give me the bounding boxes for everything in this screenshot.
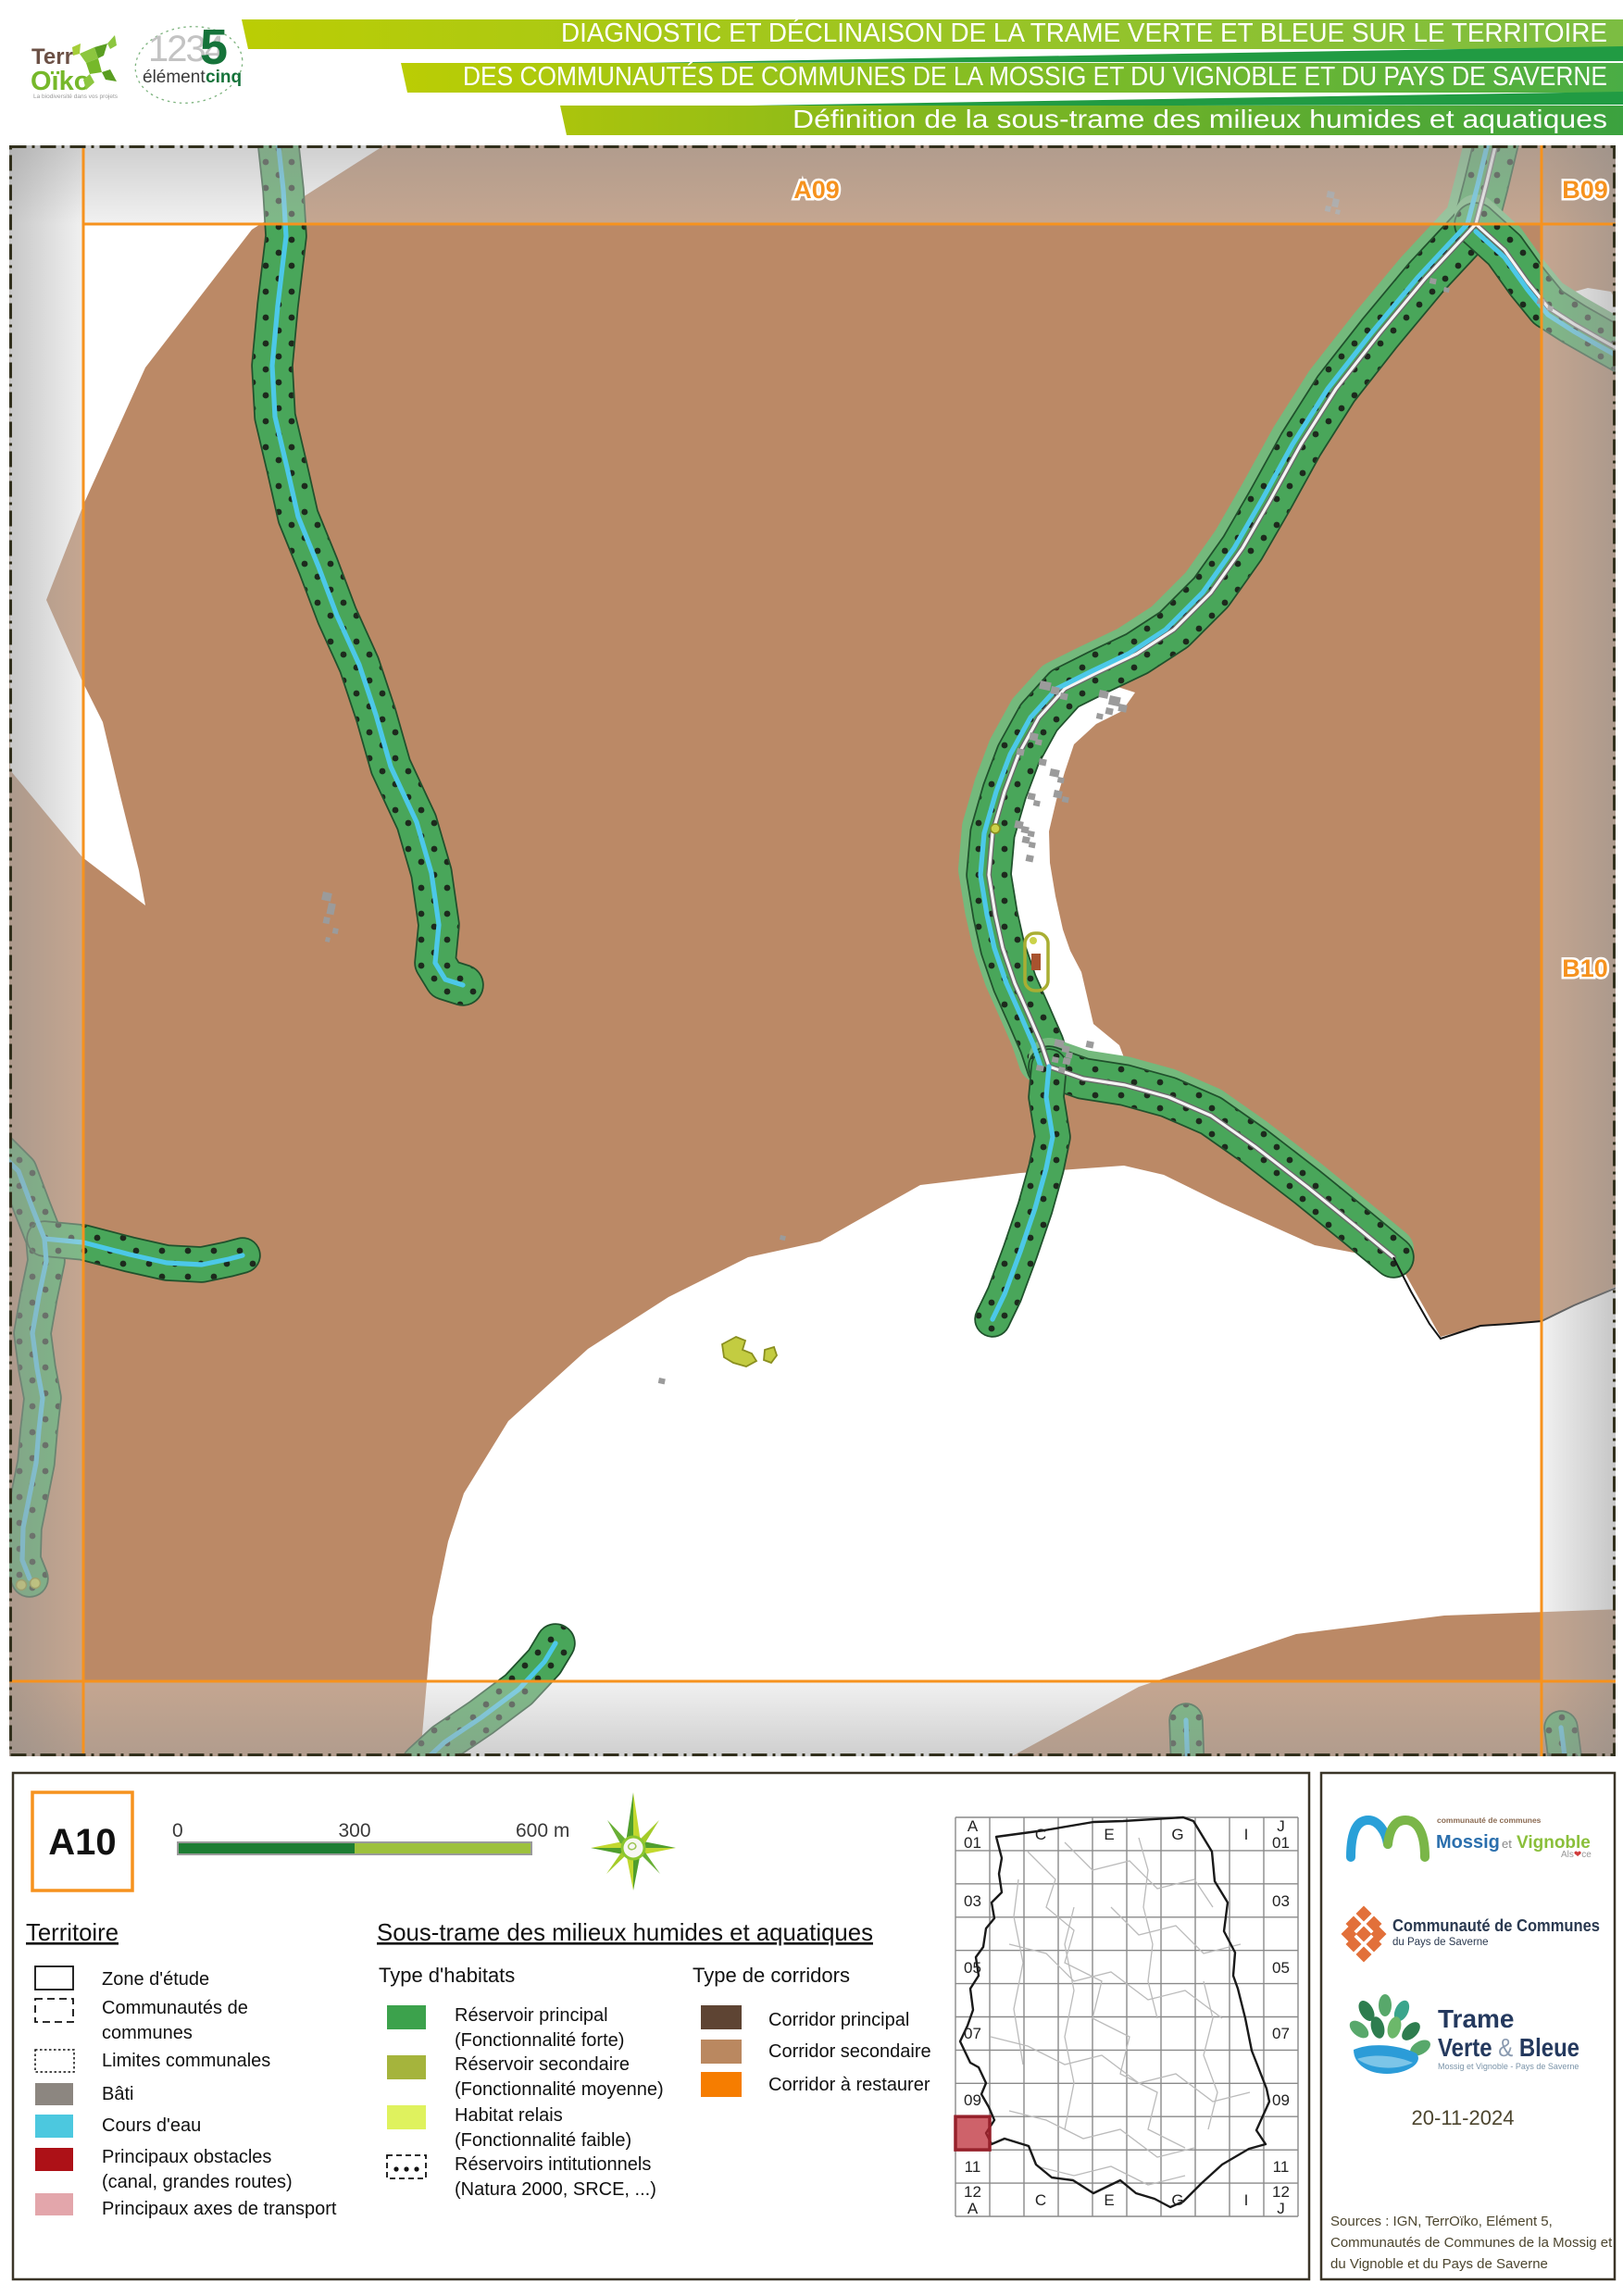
svg-text:Territoire: Territoire [26,1918,119,1946]
svg-text:Zone d'étude: Zone d'étude [102,1969,209,1990]
svg-text:Cours d'eau: Cours d'eau [102,2115,201,2136]
svg-text:Als❤ce: Als❤ce [1561,1850,1592,1860]
svg-text:07: 07 [964,2025,981,2042]
svg-text:Réservoir principal: Réservoir principal [455,2005,608,2026]
svg-text:01: 01 [1272,1834,1290,1852]
svg-text:Mossig et Vignoble - Pays de S: Mossig et Vignoble - Pays de Saverne [1438,2062,1579,2071]
svg-text:Communautés de: Communautés de [102,1998,248,2018]
svg-text:G: G [1171,1826,1183,1843]
svg-text:E: E [1104,2191,1114,2209]
svg-text:Corridor secondaire: Corridor secondaire [768,2041,931,2062]
svg-text:Principaux obstacles: Principaux obstacles [102,2147,271,2167]
svg-text:Corridor principal: Corridor principal [768,2010,909,2030]
svg-text:DIAGNOSTIC ET DÉCLINAISON DE L: DIAGNOSTIC ET DÉCLINAISON DE LA TRAME VE… [561,18,1607,48]
svg-text:A: A [968,2200,979,2217]
svg-text:(Fonctionnalité faible): (Fonctionnalité faible) [455,2130,631,2151]
svg-text:Habitat relais: Habitat relais [455,2105,563,2126]
svg-text:Communautés de Communes de la: Communautés de Communes de la Mossig et [1330,2235,1613,2251]
svg-text:12: 12 [964,2183,981,2201]
svg-text:11: 11 [1273,2158,1290,2176]
svg-text:Verte & Bleue: Verte & Bleue [1438,2033,1579,2062]
svg-text:Corridor à restaurer: Corridor à restaurer [768,2075,930,2095]
svg-text:I: I [1244,1826,1249,1843]
svg-text:J: J [1277,1817,1285,1835]
svg-text:La biodiversité dans vos proje: La biodiversité dans vos projets [33,94,119,100]
svg-text:5: 5 [200,19,228,75]
svg-text:Type de corridors: Type de corridors [693,1964,850,1987]
svg-text:et: et [1502,1837,1512,1851]
svg-text:J: J [1277,2200,1285,2217]
svg-text:09: 09 [964,2091,981,2109]
svg-text:A: A [968,1817,979,1835]
svg-text:05: 05 [1272,1959,1290,1977]
svg-text:(Natura 2000, SRCE, ...): (Natura 2000, SRCE, ...) [455,2179,656,2200]
svg-text:du Pays de Saverne: du Pays de Saverne [1392,1937,1489,1948]
svg-text:I: I [1244,2191,1249,2209]
svg-text:0: 0 [172,1820,183,1841]
svg-text:Réservoirs intitutionnels: Réservoirs intitutionnels [455,2154,651,2175]
svg-text:B09: B09 [1562,176,1608,204]
svg-text:Oïko: Oïko [31,67,90,96]
svg-text:DES COMMUNAUTÉS DE COMMUNES DE: DES COMMUNAUTÉS DE COMMUNES DE LA MOSSIG… [463,61,1607,92]
svg-text:A09: A09 [793,176,840,204]
svg-text:B10: B10 [1562,955,1608,982]
svg-text:du Vignoble et du Pays de Save: du Vignoble et du Pays de Saverne [1330,2256,1548,2272]
svg-text:A10: A10 [48,1822,116,1863]
svg-text:Terr: Terr [31,44,73,69]
svg-text:09: 09 [1272,2091,1290,2109]
svg-text:(canal, grandes routes): (canal, grandes routes) [102,2172,293,2192]
svg-text:C: C [1035,2191,1046,2209]
svg-text:Bâti: Bâti [102,2084,133,2104]
svg-text:Type d'habitats: Type d'habitats [379,1964,515,1987]
svg-text:Limites communales: Limites communales [102,2051,270,2071]
svg-text:03: 03 [964,1892,981,1910]
svg-text:Principaux axes de transport: Principaux axes de transport [102,2199,337,2219]
svg-text:Sous-trame des milieux humides: Sous-trame des milieux humides et aquati… [377,1918,873,1946]
svg-text:communes: communes [102,2023,193,2043]
svg-text:Définition de la sous-trame de: Définition de la sous-trame des milieux … [793,105,1607,133]
svg-text:élément: élément [143,68,206,87]
svg-text:(Fonctionnalité forte): (Fonctionnalité forte) [455,2030,624,2051]
svg-text:Sources : IGN, TerrOïko, Eléme: Sources : IGN, TerrOïko, Elément 5, [1330,2214,1553,2229]
svg-text:01: 01 [964,1834,981,1852]
svg-text:600 m: 600 m [516,1820,569,1841]
svg-text:C: C [1035,1826,1046,1843]
svg-text:05: 05 [964,1959,981,1977]
svg-text:Mossig: Mossig [1436,1832,1500,1853]
svg-text:20-11-2024: 20-11-2024 [1412,2106,1515,2129]
svg-text:Réservoir secondaire: Réservoir secondaire [455,2054,630,2075]
svg-text:07: 07 [1272,2025,1290,2042]
svg-text:300: 300 [338,1820,370,1841]
svg-text:communauté de communes: communauté de communes [1437,1816,1542,1825]
svg-text:G: G [1171,2191,1183,2209]
svg-text:Trame: Trame [1438,2004,1515,2033]
svg-text:11: 11 [965,2158,981,2176]
svg-text:Communauté de Communes: Communauté de Communes [1392,1916,1600,1935]
svg-text:03: 03 [1272,1892,1290,1910]
svg-text:(Fonctionnalité moyenne): (Fonctionnalité moyenne) [455,2079,664,2100]
svg-text:E: E [1104,1826,1114,1843]
svg-text:cinq: cinq [206,68,242,87]
svg-text:12: 12 [1272,2183,1290,2201]
